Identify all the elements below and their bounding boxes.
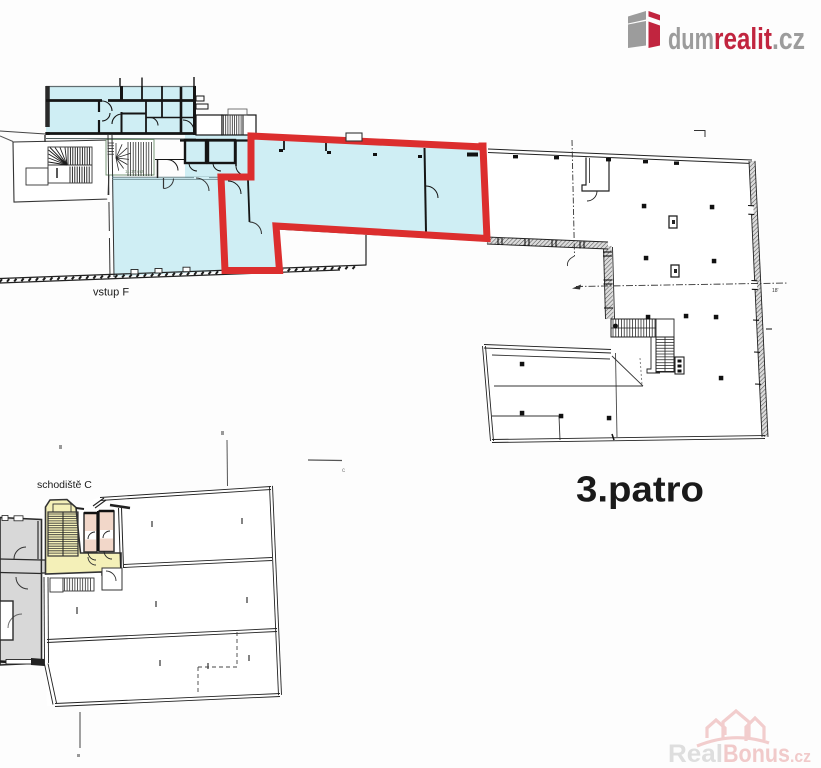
- svg-text:vstup F: vstup F: [93, 287, 129, 299]
- svg-text:.cz: .cz: [772, 21, 805, 56]
- svg-text:.cz: .cz: [790, 747, 811, 766]
- svg-text:11,17 m2: 11,17 m2: [125, 169, 144, 174]
- svg-text:Real: Real: [668, 740, 723, 768]
- svg-text:realit: realit: [714, 21, 772, 56]
- svg-text:3.patro: 3.patro: [576, 469, 704, 510]
- svg-text:18': 18': [772, 288, 779, 294]
- svg-text:Bonus: Bonus: [723, 740, 790, 768]
- svg-text:schodiště C: schodiště C: [37, 479, 92, 491]
- svg-text:dum: dum: [668, 21, 714, 56]
- svg-text:c: c: [342, 468, 345, 474]
